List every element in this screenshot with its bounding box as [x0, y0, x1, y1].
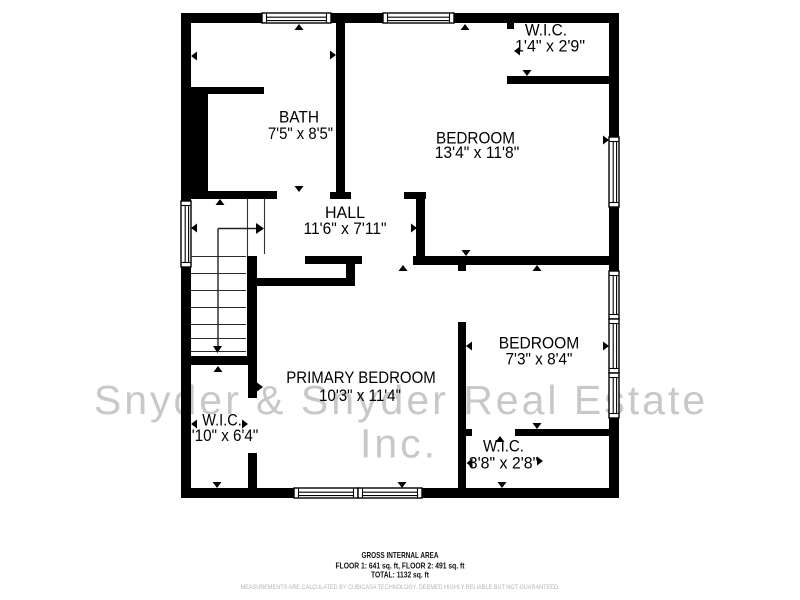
- svg-text:PRIMARY BEDROOM: PRIMARY BEDROOM: [286, 368, 436, 387]
- svg-text:MEASUREMENTS ARE CALCULATED BY: MEASUREMENTS ARE CALCULATED BY CUBICASA …: [241, 584, 560, 591]
- svg-text:13'4" x 11'8": 13'4" x 11'8": [435, 143, 520, 162]
- svg-text:11'6" x 7'11": 11'6" x 7'11": [304, 219, 387, 238]
- svg-text:Inc.: Inc.: [360, 421, 438, 467]
- svg-text:7'5" x 8'5": 7'5" x 8'5": [268, 124, 333, 143]
- svg-text:TOTAL: 1132 sq. ft: TOTAL: 1132 sq. ft: [371, 570, 429, 580]
- svg-text:GROSS INTERNAL AREA: GROSS INTERNAL AREA: [362, 550, 439, 560]
- svg-text:'10" x 6'4": '10" x 6'4": [192, 426, 259, 445]
- svg-text:1'4" x 2'9": 1'4" x 2'9": [515, 37, 585, 56]
- svg-text:3'8" x 2'8": 3'8" x 2'8": [469, 454, 539, 473]
- svg-text:7'3" x 8'4": 7'3" x 8'4": [506, 350, 573, 369]
- svg-text:10'3" x 11'4": 10'3" x 11'4": [319, 386, 401, 405]
